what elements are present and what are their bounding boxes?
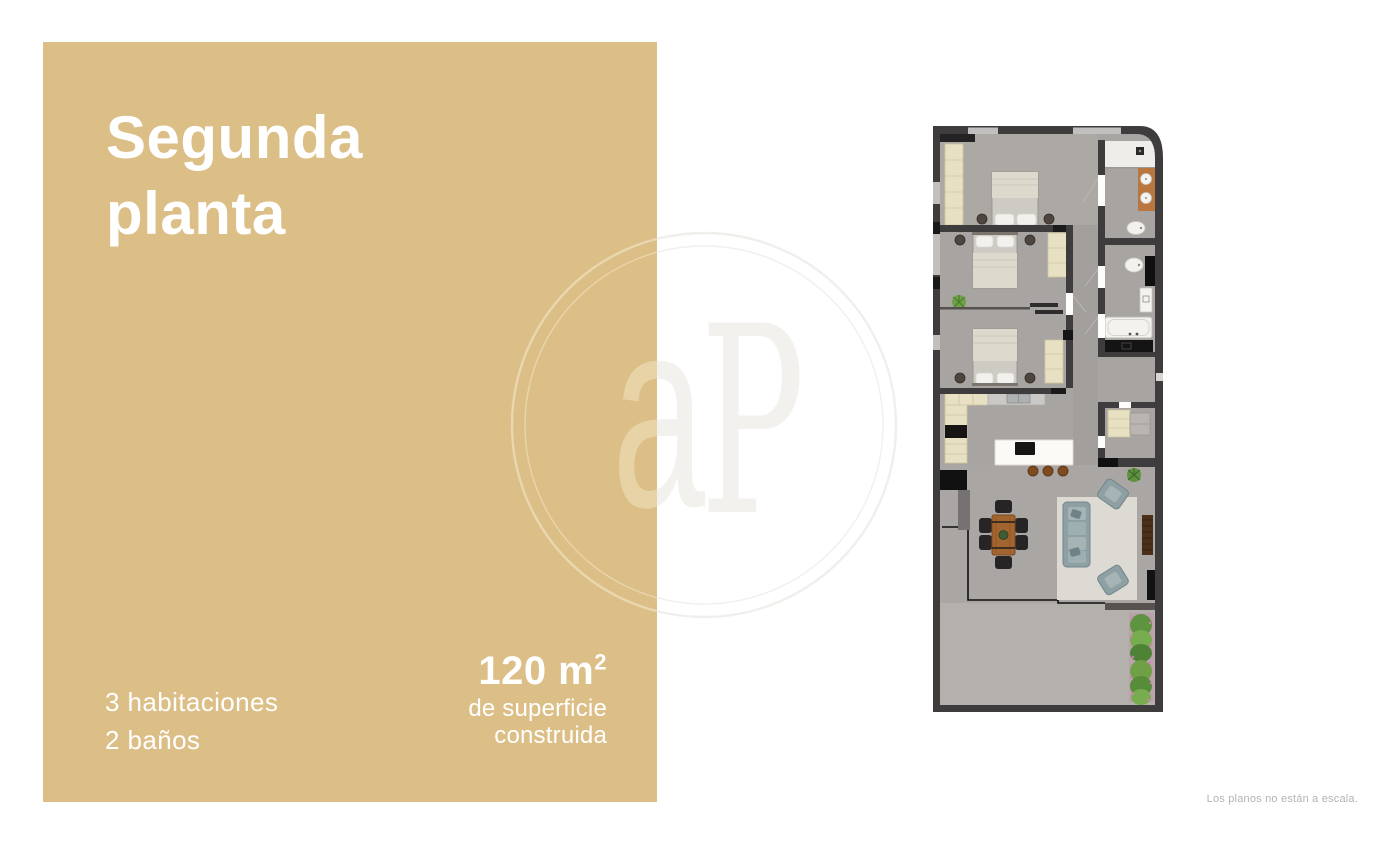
sofa xyxy=(1063,502,1090,567)
wall-jog xyxy=(933,222,940,234)
cooktop xyxy=(1015,442,1035,455)
area-caption: de superficie construida xyxy=(468,695,607,749)
stat-bathrooms: 2 baños xyxy=(105,721,278,759)
bar-stool xyxy=(1058,466,1068,476)
toilet xyxy=(1125,258,1143,272)
nightstand xyxy=(1044,214,1054,224)
svg-text:P: P xyxy=(700,271,805,574)
plant-living xyxy=(1127,468,1141,482)
pillow xyxy=(997,373,1014,384)
bar-stool xyxy=(1043,466,1053,476)
toilet xyxy=(1127,222,1145,235)
area-caption-line-2: construida xyxy=(468,722,607,749)
wardrobe xyxy=(1045,340,1063,383)
pillow xyxy=(997,236,1014,247)
sliding-door xyxy=(1030,303,1058,307)
nightstand xyxy=(1025,373,1035,383)
built-area: 120 m2 de superficie construida xyxy=(468,650,607,749)
page: Segunda planta 3 habitaciones 2 baños 12… xyxy=(0,0,1400,846)
headboard xyxy=(972,232,1018,235)
tv-console xyxy=(1142,515,1153,555)
title-line-1: Segunda xyxy=(106,100,363,176)
table-centerpiece xyxy=(999,531,1008,540)
dining-chair xyxy=(1015,535,1028,550)
page-title: Segunda planta xyxy=(106,100,363,252)
squared-superscript: 2 xyxy=(594,650,607,675)
scale-disclaimer: Los planos no están a escala. xyxy=(1207,793,1358,805)
terrace-wall-segment xyxy=(1105,603,1155,610)
room-stats: 3 habitaciones 2 baños xyxy=(105,683,278,759)
dining-chair xyxy=(979,535,992,550)
nightstand xyxy=(955,373,965,383)
bar-stool xyxy=(1028,466,1038,476)
bathtub xyxy=(1105,317,1152,338)
svg-text:P: P xyxy=(700,271,805,574)
shower-floor xyxy=(1103,141,1155,168)
sink-counter xyxy=(1140,288,1152,312)
dining-chair xyxy=(995,500,1012,513)
bed-3 xyxy=(972,329,1018,386)
nightstand xyxy=(1025,235,1035,245)
wall-jog xyxy=(933,277,940,289)
pillow xyxy=(1017,214,1036,225)
nightstand xyxy=(977,214,987,224)
headboard xyxy=(972,383,1018,386)
entry-unit xyxy=(940,470,967,490)
title-line-2: planta xyxy=(106,176,363,252)
floor-plan xyxy=(933,126,1163,716)
dining-chair xyxy=(995,556,1012,569)
closet xyxy=(1108,410,1130,437)
dressing-room xyxy=(1108,410,1150,437)
plant-bedroom-2 xyxy=(952,295,966,309)
stat-bedrooms: 3 habitaciones xyxy=(105,683,278,721)
wall-stub xyxy=(958,490,970,530)
area-value: 120 m2 xyxy=(468,650,607,692)
bed-1 xyxy=(991,172,1039,228)
flower-bed xyxy=(1129,613,1154,705)
dining-chair xyxy=(1015,518,1028,533)
floor-info-panel: Segunda planta 3 habitaciones 2 baños 12… xyxy=(43,42,657,802)
pillow xyxy=(976,373,993,384)
hallway-floor xyxy=(1073,225,1098,465)
sliding-door xyxy=(1035,310,1063,314)
bath-vanity xyxy=(1100,340,1153,352)
pillow xyxy=(995,214,1014,225)
nightstand xyxy=(955,235,965,245)
area-caption-line-1: de superficie xyxy=(468,695,607,722)
wardrobe xyxy=(945,144,963,225)
oven xyxy=(945,425,967,438)
wardrobe xyxy=(1048,233,1068,277)
kitchen-island xyxy=(995,440,1073,465)
terrace-floor xyxy=(940,603,1155,705)
bed-2 xyxy=(972,232,1018,288)
pillow xyxy=(976,236,993,247)
dining-chair xyxy=(979,518,992,533)
